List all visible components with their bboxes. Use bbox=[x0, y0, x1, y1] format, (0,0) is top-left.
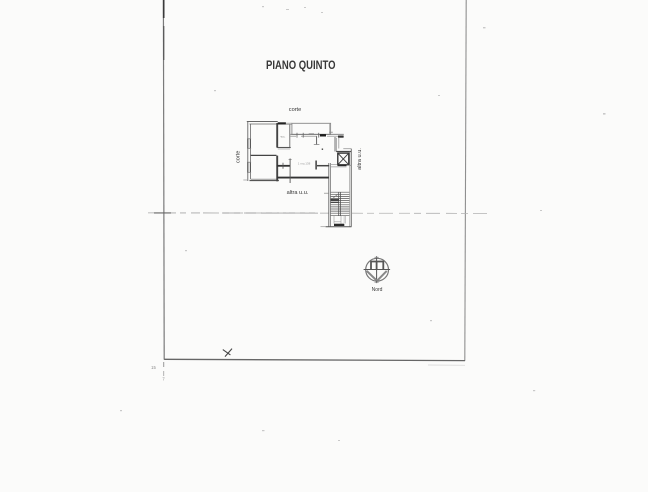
svg-text:1 mq 138: 1 mq 138 bbox=[298, 161, 311, 165]
svg-text:Nord: Nord bbox=[372, 287, 383, 293]
svg-text:corte: corte bbox=[236, 151, 242, 163]
svg-text:7: 7 bbox=[162, 377, 165, 382]
svg-text:altra u.u.: altra u.u. bbox=[357, 148, 363, 170]
svg-text:15: 15 bbox=[151, 365, 156, 370]
svg-text:PIANO QUINTO: PIANO QUINTO bbox=[266, 58, 336, 72]
svg-text:corte: corte bbox=[289, 107, 301, 113]
svg-text:w.c.: w.c. bbox=[281, 135, 286, 139]
svg-text:altra u.u.: altra u.u. bbox=[287, 190, 309, 196]
